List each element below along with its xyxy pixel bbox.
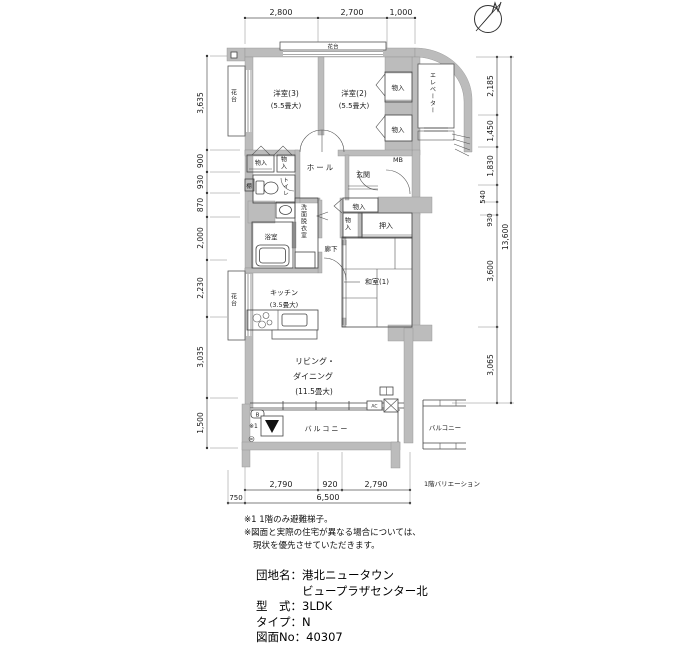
- type-label: タイプ：: [256, 615, 302, 631]
- living-label-2: ダイニング: [293, 371, 333, 381]
- unit-info-block: 団地名： 港北ニュータウン ビュープラザセンター北 型 式： 3LDK タイプ：…: [256, 568, 428, 646]
- bedroom3-size: (5.5畳大): [271, 101, 302, 110]
- dim-top-1: 2,800: [270, 8, 293, 17]
- living-label-1: リビング・: [295, 356, 335, 366]
- dim-bottom-left: 750: [229, 494, 242, 502]
- info-row-kata: 型 式： 3LDK: [256, 599, 428, 615]
- living-size: (11.5畳大): [295, 386, 333, 396]
- toilet-tank: [256, 181, 264, 194]
- dim-left-6: 2,230: [196, 277, 205, 299]
- notes-block: ※1 1階のみ避難梯子。 ※図面と実際の住宅が異なる場合については、 現状を優先…: [244, 514, 421, 553]
- info-row-type: タイプ： N: [256, 615, 428, 631]
- dim-left-7: 3,035: [196, 346, 205, 368]
- hall-label: ホール: [307, 163, 336, 172]
- dim-left-8: 1,500: [196, 412, 205, 434]
- dimension-right: 2,185 1,450 1,830 540 930 3,600 3,065 13…: [452, 56, 514, 404]
- dim-bottom-total: 6,500: [317, 493, 340, 502]
- floorplan-page: 2,800 2,700 1,000 3,635 900 930 870 2,00…: [0, 0, 700, 650]
- type-value: N: [302, 615, 311, 631]
- dim-bottom-3: 2,790: [365, 480, 388, 489]
- corridor-label: 廊下: [325, 244, 339, 253]
- closet-right-upper-label: 物入: [392, 83, 406, 92]
- dim-right-1: 2,185: [486, 75, 495, 97]
- dimension-bottom: 2,790 920 2,790 750 6,500 1階バリエーション: [227, 452, 480, 505]
- kata-label: 型 式：: [256, 599, 302, 615]
- kata-value: 3LDK: [302, 599, 332, 615]
- flower-box-left-lower-label: 花台: [230, 292, 237, 307]
- danchi-label: 団地名：: [256, 568, 302, 599]
- danchi-value-line2: ビュープラザセンター北: [302, 584, 428, 600]
- closet-right-lower-label: 物入: [392, 125, 406, 134]
- info-row-zumen: 図面No： 40307: [256, 630, 428, 646]
- danchi-value: 港北ニュータウン ビュープラザセンター北: [302, 568, 428, 599]
- closet-bifold-3: [376, 74, 385, 96]
- stove-icon: [253, 313, 272, 329]
- first-floor-variation-label: 1階バリエーション: [424, 479, 480, 488]
- bathroom-label: 浴室: [265, 232, 279, 241]
- dim-left-4: 870: [196, 198, 205, 213]
- hatch-note-mark: ※1: [249, 423, 258, 430]
- b-mark-label: B: [256, 413, 260, 419]
- oshiire-label: 押入: [379, 221, 393, 230]
- dim-top-3: 1,000: [390, 8, 413, 17]
- dim-left-1: 3,635: [196, 92, 205, 114]
- variation-balcony: バルコニー: [423, 400, 466, 449]
- dim-left-5: 2,000: [196, 227, 205, 249]
- dim-bottom-2: 920: [322, 480, 337, 489]
- dim-right-3: 1,830: [486, 155, 495, 177]
- dim-right-total: 13,600: [501, 224, 510, 250]
- hall-closet-label: 物入: [353, 202, 367, 211]
- flower-box-top-label: 花台: [327, 43, 339, 51]
- dim-bottom-1: 2,790: [270, 480, 293, 489]
- flower-box-left-upper-label: 花台: [230, 88, 237, 103]
- zumen-value: 40307: [306, 630, 343, 646]
- closet-under-bed3-label: 物入: [255, 159, 267, 167]
- small-closet-label: 物入: [344, 216, 351, 231]
- dim-right-2: 1,450: [486, 120, 495, 142]
- shelf-label: 棚: [246, 182, 252, 190]
- dim-right-5: 930: [486, 213, 494, 226]
- closet-under-bed3-vertical-label: 物入: [280, 155, 287, 170]
- toilet-label: トイレ: [282, 177, 289, 197]
- ac-label: AC: [371, 404, 377, 410]
- note-line-3: 現状を優先させていただきます。: [244, 540, 421, 553]
- bedroom3-label: 洋室(3): [273, 88, 299, 98]
- kitchen-label: キッチン: [270, 289, 298, 297]
- note-line-2: ※図面と実際の住宅が異なる場合については、: [244, 527, 421, 540]
- info-row-danchi: 団地名： 港北ニュータウン ビュープラザセンター北: [256, 568, 428, 599]
- counter-box: [272, 330, 317, 339]
- danchi-value-line1: 港北ニュータウン: [302, 568, 428, 584]
- meter-box-label: MB: [393, 156, 403, 164]
- bedroom2-door-arc: [322, 130, 344, 152]
- dim-top-2: 2,700: [341, 8, 364, 17]
- elevator-label: エレベーター: [429, 72, 436, 114]
- washing-machine: [295, 252, 315, 268]
- closet-bifold-4: [376, 116, 385, 138]
- room-labels: 洋室(3) (5.5畳大) 洋室(2) (5.5畳大) 物入 物入 ホール 玄関…: [246, 83, 405, 396]
- variation-balcony-label: バルコニー: [429, 424, 461, 432]
- zumen-label: 図面No：: [256, 630, 306, 646]
- dim-right-7: 3,065: [486, 354, 495, 376]
- kitchen-size: (3.5畳大): [270, 300, 298, 309]
- compass-icon: [475, 2, 502, 33]
- bedroom2-size: (5.5畳大): [339, 101, 370, 110]
- bedroom2-label: 洋室(2): [341, 88, 367, 98]
- balcony-label: バルコニー: [305, 425, 350, 433]
- meter-box-door-arc: [386, 170, 410, 194]
- note-line-1: ※1 1階のみ避難梯子。: [244, 514, 421, 527]
- dim-right-4: 540: [479, 190, 487, 203]
- dim-left-2: 900: [196, 154, 205, 169]
- kitchen-sink: [282, 314, 307, 326]
- dim-right-6: 3,600: [486, 260, 495, 282]
- toilet-bowl: [264, 182, 278, 194]
- washroom-label: 洗面脱衣室: [300, 203, 307, 239]
- dim-left-3: 930: [196, 175, 205, 190]
